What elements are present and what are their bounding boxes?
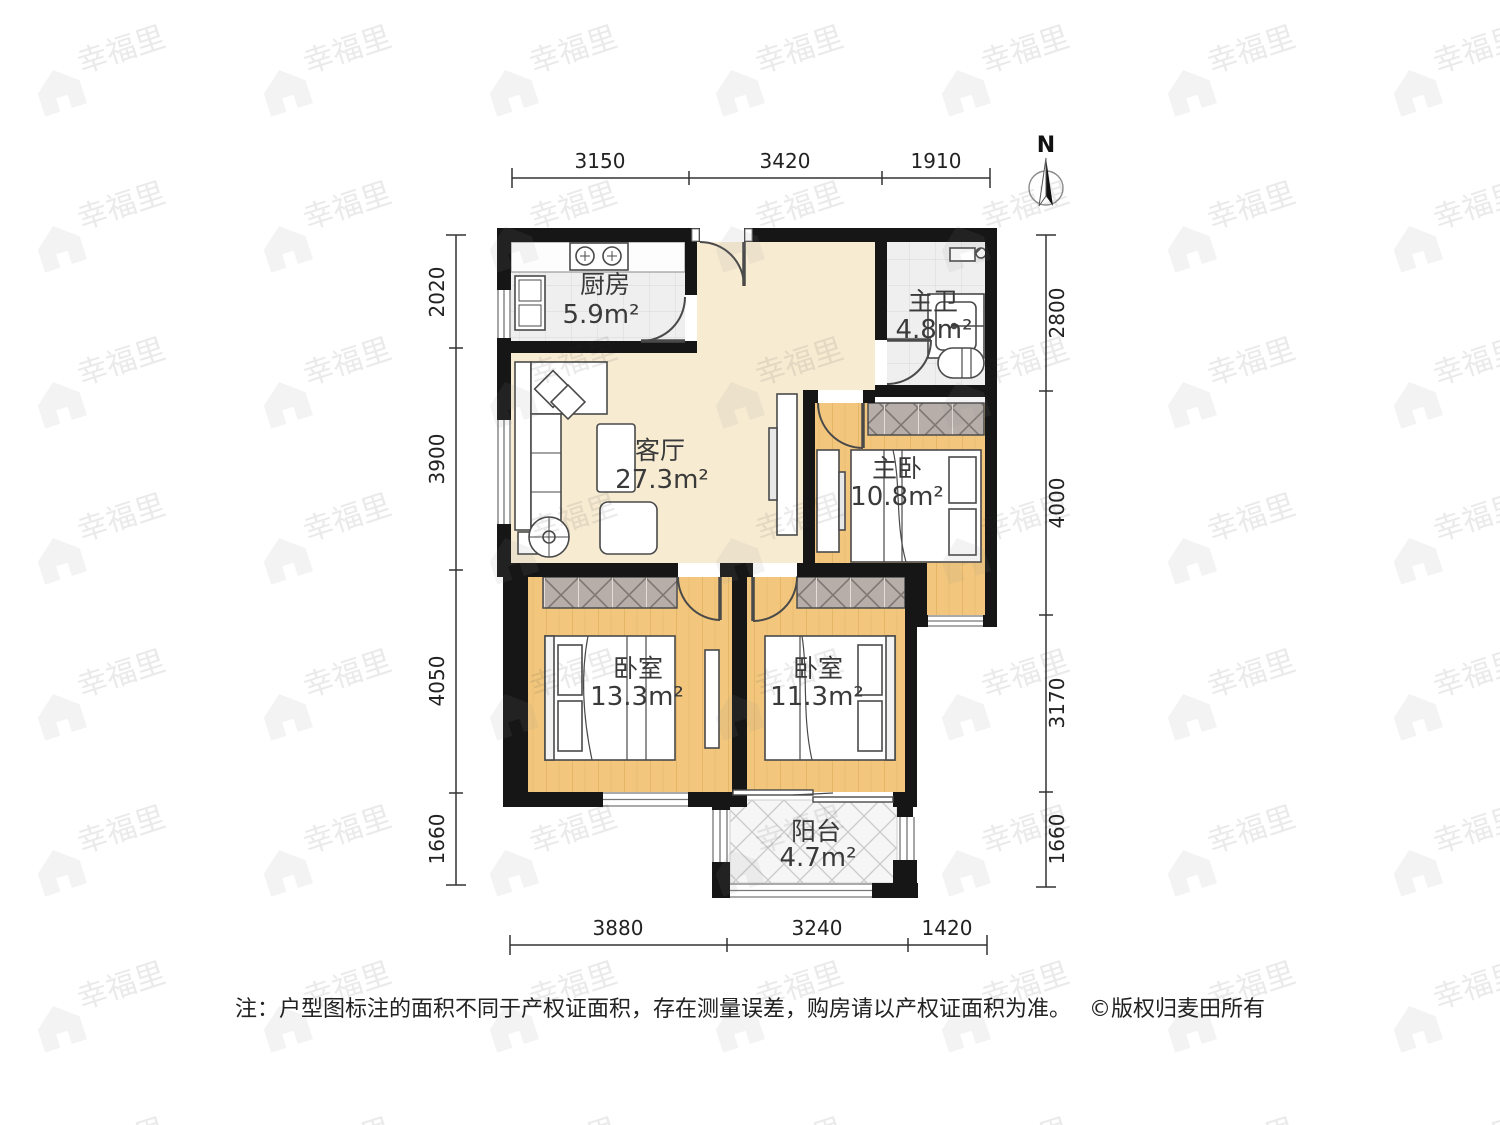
room-master-name: 主卧	[872, 454, 922, 483]
room-bedroom-east-name: 卧室	[793, 654, 843, 683]
dim-left-2: 3900	[425, 434, 449, 485]
room-bedroom-east-area: 11.3m²	[770, 682, 864, 712]
dim-bottom-2: 3240	[792, 916, 843, 940]
room-bedroom-west-area: 13.3m²	[590, 682, 684, 712]
dim-right-4: 1660	[1045, 814, 1069, 865]
compass-label: N	[1037, 133, 1055, 158]
dim-top-3: 1910	[911, 149, 962, 173]
footer-note: 注：户型图标注的面积不同于产权证面积，存在测量误差，购房请以产权证面积为准。©版…	[235, 997, 1265, 1022]
room-master-area: 10.8m²	[850, 482, 944, 512]
room-bath-name: 主卫	[908, 287, 958, 316]
floor-plan-canvas: 幸福里	[0, 0, 1500, 1125]
dim-bottom-1: 3880	[593, 916, 644, 940]
footer-disclaimer: 注：户型图标注的面积不同于产权证面积，存在测量误差，购房请以产权证面积为准。	[235, 997, 1071, 1022]
dim-top-2: 3420	[760, 149, 811, 173]
room-kitchen-area: 5.9m²	[562, 300, 639, 330]
room-balcony-name: 阳台	[791, 817, 841, 846]
footer-copyright: ©版权归麦田所有	[1089, 997, 1265, 1022]
room-bath-area: 4.8m²	[895, 315, 972, 345]
dim-left-1: 2020	[425, 267, 449, 318]
dim-right-3: 3170	[1045, 678, 1069, 729]
floor-plan-page: { "compass": { "label": "N" }, "rooms": …	[0, 0, 1500, 1125]
room-kitchen-name: 厨房	[580, 270, 630, 299]
dim-top-1: 3150	[575, 149, 626, 173]
watermark-layer	[0, 0, 1500, 1125]
dim-right-2: 4000	[1045, 478, 1069, 529]
dim-left-3: 4050	[425, 656, 449, 707]
room-living-name: 客厅	[635, 436, 685, 465]
room-balcony-area: 4.7m²	[779, 843, 856, 873]
dim-right-1: 2800	[1045, 288, 1069, 339]
dim-bottom-3: 1420	[922, 916, 973, 940]
room-bedroom-west-name: 卧室	[613, 654, 663, 683]
room-living-area: 27.3m²	[615, 465, 709, 495]
dim-left-4: 1660	[425, 814, 449, 865]
